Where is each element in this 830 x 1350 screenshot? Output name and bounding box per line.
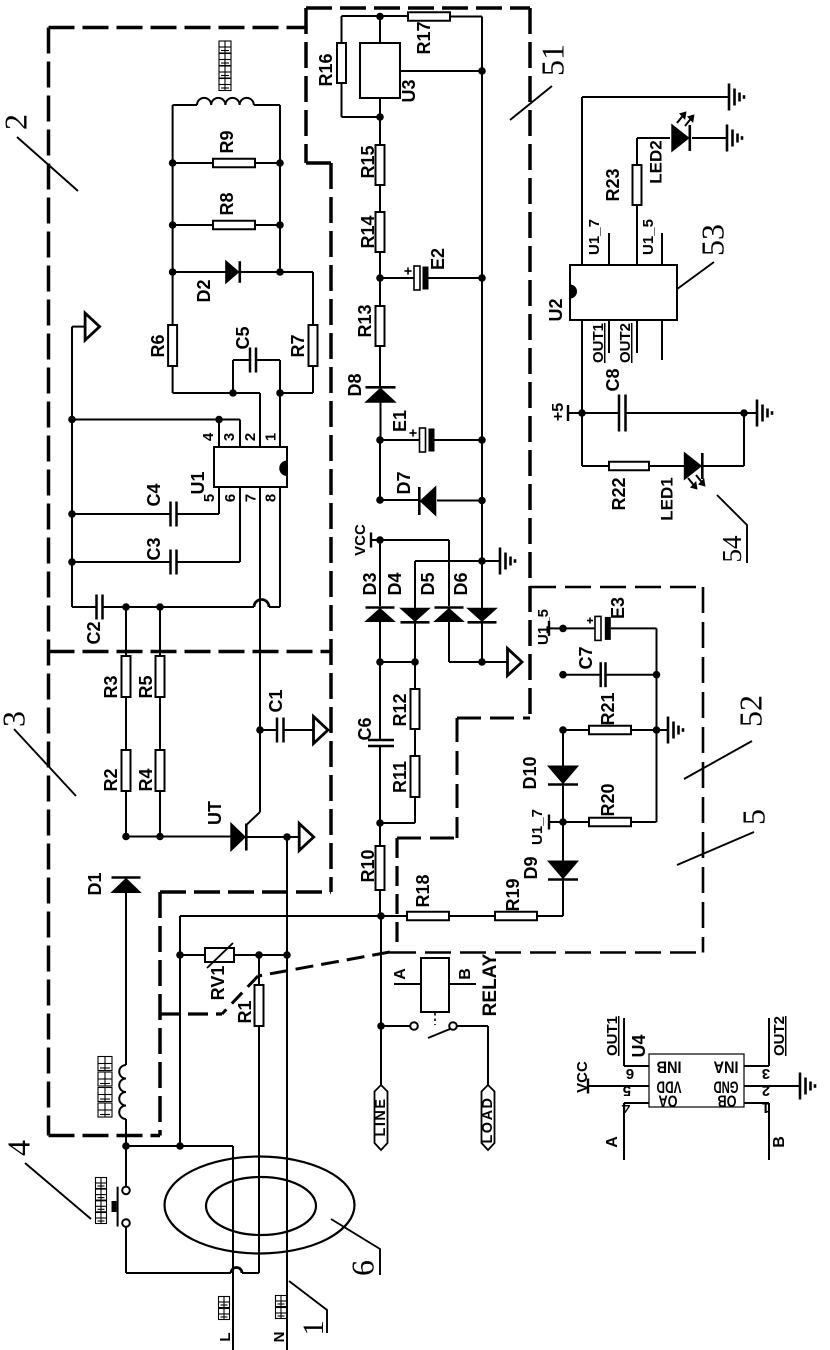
svg-text:R10: R10 <box>358 849 378 882</box>
svg-text:RV1: RV1 <box>208 966 228 1001</box>
svg-text:D4: D4 <box>385 572 405 595</box>
svg-text:2: 2 <box>0 114 33 130</box>
svg-text:8: 8 <box>262 494 279 502</box>
svg-text:N: N <box>271 1332 288 1343</box>
svg-text:U1_5: U1_5 <box>535 609 552 645</box>
svg-text:LED2: LED2 <box>646 140 665 183</box>
svg-text:D10: D10 <box>520 756 540 789</box>
svg-text:U1_5: U1_5 <box>640 219 657 255</box>
svg-text:4: 4 <box>200 432 217 441</box>
svg-text:R3: R3 <box>101 675 121 698</box>
svg-text:53: 53 <box>694 224 730 256</box>
svg-text:3: 3 <box>0 711 31 727</box>
svg-text:R8: R8 <box>217 192 237 215</box>
svg-text:R20: R20 <box>598 783 618 816</box>
svg-text:B: B <box>771 1136 788 1148</box>
svg-text:LED1: LED1 <box>657 477 676 520</box>
svg-text:INB: INB <box>657 1058 682 1077</box>
svg-text:R22: R22 <box>609 477 629 510</box>
svg-text:R1: R1 <box>235 1000 255 1023</box>
svg-text:R18: R18 <box>413 874 433 907</box>
svg-text:U1: U1 <box>188 471 208 494</box>
svg-text:R12: R12 <box>390 693 410 726</box>
svg-text:52: 52 <box>732 695 768 727</box>
svg-text:R14: R14 <box>358 215 378 248</box>
svg-text:4: 4 <box>0 1140 36 1156</box>
svg-text:R7: R7 <box>288 334 308 357</box>
svg-text:R9: R9 <box>217 130 237 153</box>
svg-text:C2: C2 <box>84 621 104 644</box>
svg-text:1: 1 <box>297 1321 330 1336</box>
svg-text:U4: U4 <box>629 1034 649 1057</box>
svg-text:R4: R4 <box>136 768 156 791</box>
svg-text:C6: C6 <box>355 717 375 740</box>
svg-text:OUT1: OUT1 <box>590 323 607 363</box>
svg-text:2: 2 <box>242 433 259 441</box>
svg-text:OUT1: OUT1 <box>604 1016 621 1056</box>
svg-text:D2: D2 <box>194 279 214 302</box>
svg-text:D1: D1 <box>85 872 105 895</box>
svg-text:5: 5 <box>623 1082 631 1099</box>
svg-text:+5: +5 <box>550 403 567 421</box>
svg-text:C1: C1 <box>266 689 286 712</box>
svg-text:R16: R16 <box>316 53 336 86</box>
svg-text:54: 54 <box>717 535 747 563</box>
svg-text:VCC: VCC <box>352 524 369 556</box>
svg-text:R17: R17 <box>414 21 434 54</box>
svg-text:B: B <box>457 968 474 980</box>
svg-text:6: 6 <box>344 1260 380 1276</box>
svg-text:U2: U2 <box>546 298 566 321</box>
svg-text:D3: D3 <box>360 572 380 595</box>
svg-text:L: L <box>217 1332 234 1341</box>
svg-text:R15: R15 <box>358 145 378 178</box>
svg-text:R6: R6 <box>148 334 168 357</box>
svg-text:D9: D9 <box>521 856 541 879</box>
svg-text:6: 6 <box>626 1065 634 1082</box>
svg-text:E2: E2 <box>428 248 448 270</box>
svg-text:E1: E1 <box>390 410 410 432</box>
svg-text:R19: R19 <box>503 878 523 911</box>
svg-text:RELAY: RELAY <box>480 953 501 1016</box>
svg-text:51: 51 <box>534 44 570 76</box>
svg-text:6: 6 <box>222 494 239 502</box>
svg-text:R13: R13 <box>355 304 375 337</box>
svg-text:3: 3 <box>221 433 238 441</box>
svg-text:C3: C3 <box>144 537 164 560</box>
svg-text:U1_7: U1_7 <box>586 219 603 255</box>
svg-text:R2: R2 <box>101 768 121 791</box>
svg-text:D8: D8 <box>345 373 365 396</box>
svg-text:R21: R21 <box>598 692 618 725</box>
svg-text:R5: R5 <box>136 675 156 698</box>
svg-text:D7: D7 <box>394 471 414 494</box>
svg-text:OA: OA <box>659 1092 678 1111</box>
svg-text:C7: C7 <box>576 646 596 669</box>
svg-text:VCC: VCC <box>574 1061 591 1093</box>
svg-text:LOAD: LOAD <box>480 1096 496 1143</box>
svg-text:2: 2 <box>762 1082 770 1099</box>
svg-text:U1_7: U1_7 <box>529 809 546 845</box>
svg-text:C4: C4 <box>144 483 164 506</box>
svg-text:E3: E3 <box>608 597 628 619</box>
svg-text:INA: INA <box>714 1058 739 1077</box>
svg-text:C8: C8 <box>603 368 623 391</box>
svg-text:5: 5 <box>735 809 771 825</box>
svg-text:OUT2: OUT2 <box>617 323 634 363</box>
svg-text:R11: R11 <box>390 761 410 793</box>
svg-text:OB: OB <box>718 1092 737 1111</box>
svg-text:7: 7 <box>242 494 259 502</box>
svg-text:D6: D6 <box>451 572 471 595</box>
svg-text:OUT2: OUT2 <box>771 1016 788 1056</box>
svg-text:4: 4 <box>621 1099 630 1116</box>
svg-text:5: 5 <box>201 494 218 502</box>
svg-text:U3: U3 <box>399 79 419 102</box>
svg-text:C5: C5 <box>233 326 253 349</box>
svg-text:D5: D5 <box>418 572 438 595</box>
svg-text:3: 3 <box>762 1065 770 1082</box>
svg-text:R23: R23 <box>603 168 623 201</box>
svg-text:UT: UT <box>205 801 225 825</box>
svg-text:A: A <box>604 1136 621 1148</box>
svg-text:A: A <box>392 968 409 980</box>
svg-text:1: 1 <box>262 433 279 441</box>
svg-text:LINE: LINE <box>373 1097 389 1136</box>
